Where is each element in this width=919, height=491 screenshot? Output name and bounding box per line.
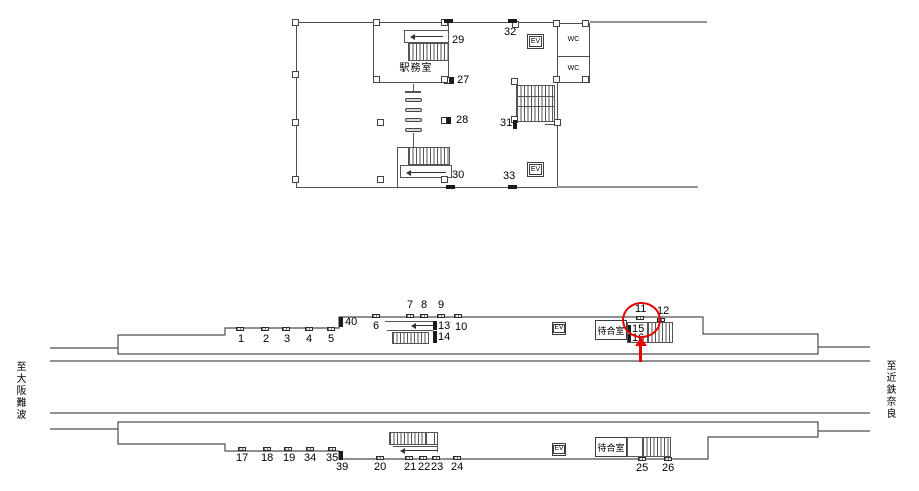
- elevator-platform-lower: EV: [552, 443, 566, 456]
- ad-position-bar-26: [664, 457, 672, 461]
- ad-position-bar-8: [420, 314, 428, 318]
- pillar: [292, 176, 299, 183]
- pillar: [554, 119, 561, 126]
- ad-position-bar-28: [447, 117, 451, 124]
- position-label-40: 40: [345, 317, 357, 328]
- position-label-2: 2: [263, 334, 269, 345]
- position-label-19: 19: [283, 453, 295, 464]
- escalator-direction-arrow: [411, 323, 416, 329]
- ad-position-bar-34: [306, 447, 314, 451]
- pillar: [441, 176, 448, 183]
- pillar: [373, 19, 380, 26]
- escalator-arrow-line: [415, 325, 433, 326]
- ad-position-bar-6: [372, 314, 380, 318]
- elevator-concourse-south: EV: [527, 162, 544, 177]
- platform-escalator-lower-line: [393, 446, 438, 447]
- pillar: [292, 19, 299, 26]
- position-label-1: 1: [238, 334, 244, 345]
- ad-position-bar-2: [261, 327, 269, 331]
- position-label-18: 18: [261, 453, 273, 464]
- pillar: [582, 20, 589, 27]
- position-label-26: 26: [662, 463, 674, 474]
- destination-right: 至近鉄奈良: [884, 360, 894, 420]
- pillar: [441, 76, 448, 83]
- position-label-3: 3: [284, 334, 290, 345]
- highlight-arrow-shaft: [639, 344, 642, 362]
- platform-stairs-lower: [389, 432, 426, 445]
- ad-position-bar-14: [433, 331, 437, 343]
- track-line-2: [50, 412, 870, 414]
- ad-position-bar-31: [513, 120, 517, 129]
- platform-escalator-upper: [385, 321, 433, 322]
- ad-position-bar-22: [419, 456, 427, 460]
- position-label-5: 5: [328, 334, 334, 345]
- pillar: [292, 119, 299, 126]
- ad-position-bar-5: [327, 327, 335, 331]
- ad-position-bar-21: [405, 456, 413, 460]
- ad-position-bar-33: [508, 185, 517, 189]
- ad-position-bar-17: [238, 447, 246, 451]
- pillar: [377, 119, 384, 126]
- ad-position-bar-29: [444, 19, 453, 23]
- stairs-lower-edge: [437, 445, 438, 452]
- position-label-24: 24: [451, 462, 463, 473]
- position-label-21: 21: [404, 462, 416, 473]
- position-label-23: 23: [431, 462, 443, 473]
- position-label-17: 17: [236, 453, 248, 464]
- pillar: [553, 20, 560, 27]
- ad-position-bar-39: [339, 451, 343, 460]
- platform-stairs-upper: [392, 332, 429, 344]
- ad-position-bar-3: [282, 327, 290, 331]
- ad-position-bar-4: [305, 327, 313, 331]
- elevator-platform-upper: EV: [552, 322, 566, 335]
- ad-position-bar-35: [328, 447, 336, 451]
- ad-position-bar-10: [454, 314, 462, 318]
- station-map: WC WC 駅務室 29 27 28 30 32 EV 31: [0, 0, 919, 491]
- position-label-4: 4: [306, 334, 312, 345]
- pillar: [373, 76, 380, 83]
- position-label-9: 9: [438, 300, 444, 311]
- ad-position-bar-30: [446, 185, 455, 189]
- position-label-34: 34: [304, 453, 316, 464]
- position-label-14: 14: [438, 332, 450, 343]
- platform-escalator-upper-line: [387, 330, 433, 331]
- pillar: [292, 71, 299, 78]
- platform-stairs-east-lower: [627, 437, 671, 457]
- pillar: [553, 76, 560, 83]
- position-label-6: 6: [373, 321, 379, 332]
- ad-position-bar-32: [508, 19, 517, 23]
- ad-position-bar-18: [263, 447, 271, 451]
- ad-position-bar-1: [236, 327, 244, 331]
- position-label-22: 22: [418, 462, 430, 473]
- ad-position-bar-40: [339, 317, 343, 327]
- elevator-label: EV: [553, 324, 565, 334]
- highlight-circle: [622, 302, 661, 338]
- position-label-10: 10: [455, 322, 467, 333]
- ad-position-bar-13: [433, 321, 437, 330]
- ad-position-bar-19: [284, 447, 292, 451]
- position-label-25: 25: [636, 463, 648, 474]
- ad-position-bar-24: [453, 456, 461, 460]
- position-label-39: 39: [336, 462, 348, 473]
- escalator-direction-arrow: [400, 448, 405, 454]
- waiting-room-lower: 待合室: [595, 437, 627, 457]
- position-label-20: 20: [374, 462, 386, 473]
- track-line-1: [50, 360, 870, 362]
- escalator-arrow-line: [404, 450, 438, 451]
- elevator-concourse-north: EV: [527, 34, 544, 49]
- ad-position-bar-9: [437, 314, 445, 318]
- elevator-label: EV: [529, 36, 542, 47]
- pillar: [377, 176, 384, 183]
- ad-position-bar-7: [406, 314, 414, 318]
- platform-outlines: [0, 0, 919, 491]
- destination-left: 至大阪難波: [14, 361, 24, 421]
- ad-position-bar-27: [450, 77, 454, 84]
- position-label-7: 7: [407, 300, 413, 311]
- elevator-label: EV: [529, 164, 542, 175]
- platform-stairs-lower-landing: [426, 432, 438, 445]
- ad-position-bar-20: [376, 456, 384, 460]
- elevator-label: EV: [553, 445, 565, 455]
- ad-position-bar-23: [432, 456, 440, 460]
- pillar: [582, 76, 589, 83]
- position-label-8: 8: [421, 300, 427, 311]
- pillar: [511, 78, 518, 85]
- ad-position-bar-25: [638, 457, 646, 461]
